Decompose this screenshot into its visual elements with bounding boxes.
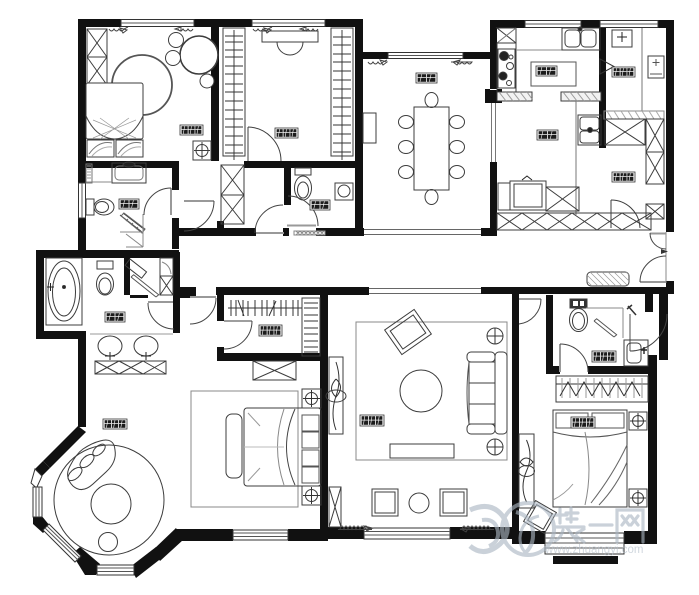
svg-text:www.zhuangyi.com: www.zhuangyi.com (544, 544, 643, 556)
